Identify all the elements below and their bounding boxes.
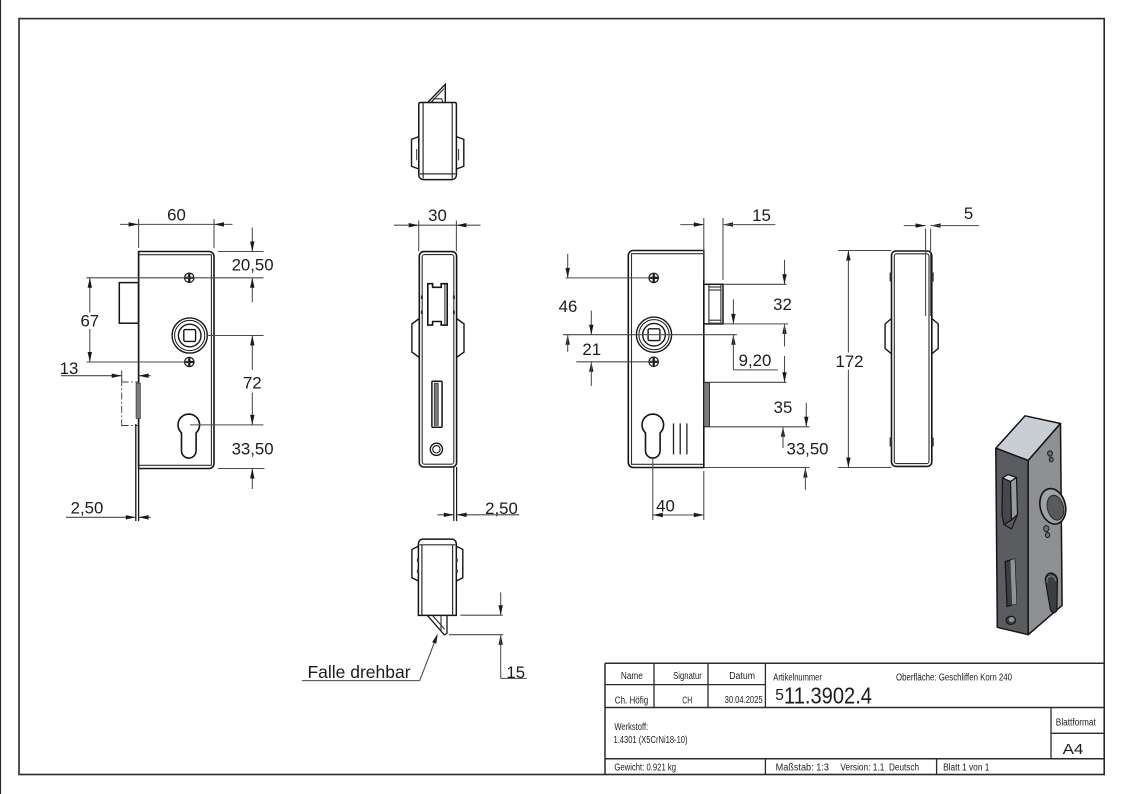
- svg-text:5: 5: [775, 687, 784, 704]
- svg-text:11.3902.4: 11.3902.4: [784, 683, 872, 709]
- svg-text:20,50: 20,50: [232, 255, 274, 274]
- svg-text:9,20: 9,20: [739, 351, 772, 370]
- svg-text:Oberfläche: Geschliffen Korn: Oberfläche: Geschliffen Korn 240: [896, 672, 1012, 683]
- svg-text:Blatt 1 von 1: Blatt 1 von 1: [943, 763, 990, 774]
- svg-text:172: 172: [836, 352, 864, 371]
- svg-text:Gewicht: 0.921 kg: Gewicht: 0.921 kg: [614, 763, 676, 774]
- svg-text:13: 13: [60, 359, 79, 378]
- svg-text:Maßstab: 1:3: Maßstab: 1:3: [776, 763, 830, 774]
- svg-text:Signatur: Signatur: [673, 671, 702, 682]
- svg-text:40: 40: [656, 496, 675, 515]
- svg-text:21: 21: [582, 340, 601, 359]
- svg-text:60: 60: [167, 206, 186, 225]
- svg-text:30: 30: [428, 206, 447, 225]
- svg-text:35: 35: [774, 398, 793, 417]
- svg-text:CH: CH: [682, 695, 692, 706]
- svg-text:33,50: 33,50: [232, 439, 274, 458]
- svg-text:30.04.2025: 30.04.2025: [725, 695, 763, 706]
- svg-text:Name: Name: [621, 671, 643, 682]
- svg-text:15: 15: [506, 663, 525, 682]
- svg-text:46: 46: [559, 297, 578, 316]
- svg-text:1.4301 (X5CrNi18-10): 1.4301 (X5CrNi18-10): [614, 735, 688, 746]
- svg-text:Werkstoff:: Werkstoff:: [614, 722, 648, 733]
- svg-text:A4: A4: [1063, 741, 1084, 758]
- svg-text:32: 32: [773, 295, 792, 314]
- svg-text:5: 5: [964, 204, 973, 223]
- svg-text:Blattformat: Blattformat: [1056, 717, 1096, 728]
- svg-text:33,50: 33,50: [787, 440, 829, 459]
- svg-text:72: 72: [243, 373, 262, 392]
- svg-text:Falle drehbar: Falle drehbar: [307, 662, 410, 682]
- svg-text:Version: 1.1: Version: 1.1: [840, 763, 884, 774]
- svg-text:2,50: 2,50: [485, 499, 518, 518]
- svg-text:Ch. Höfig: Ch. Höfig: [615, 695, 648, 706]
- svg-text:Datum: Datum: [729, 671, 755, 682]
- svg-text:67: 67: [80, 311, 99, 330]
- svg-text:15: 15: [752, 206, 771, 225]
- svg-text:2,50: 2,50: [71, 499, 104, 518]
- svg-text:Deutsch: Deutsch: [889, 763, 919, 774]
